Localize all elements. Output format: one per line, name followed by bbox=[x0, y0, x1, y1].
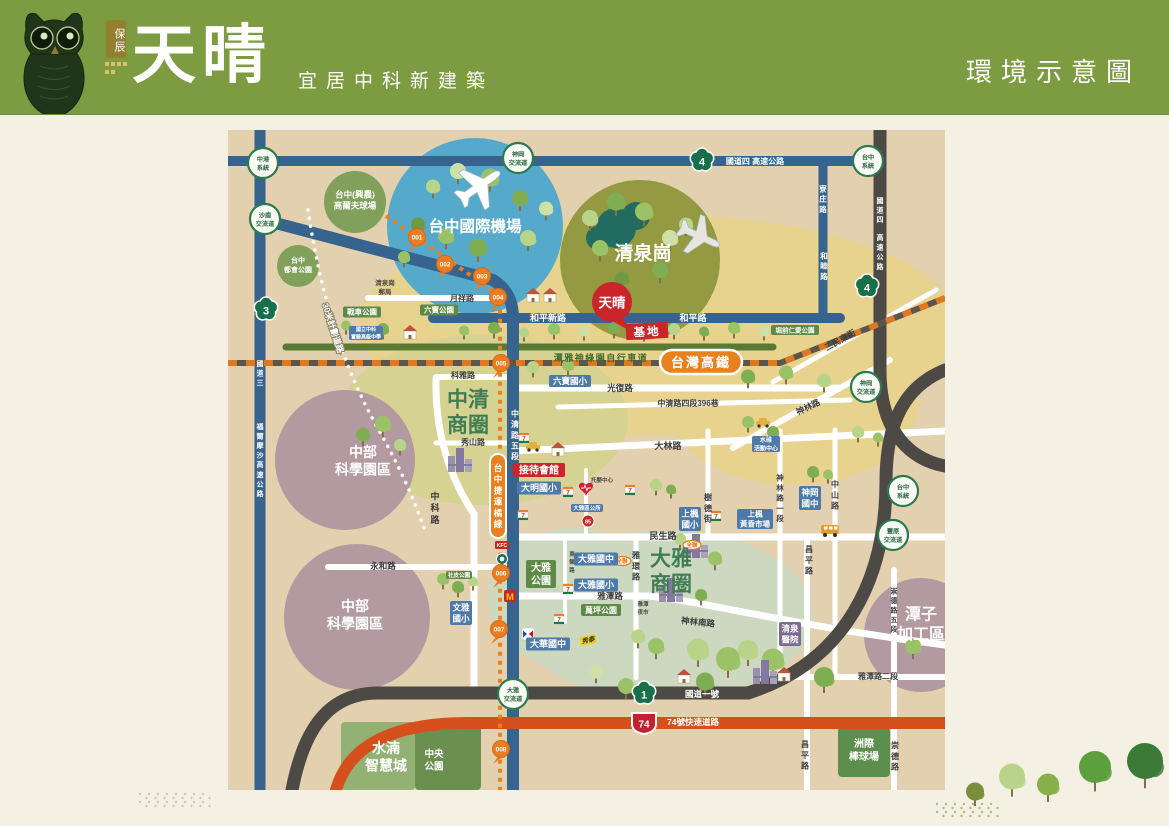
marker-id: 003 bbox=[477, 274, 488, 281]
tree-crown-2 bbox=[656, 644, 665, 653]
label-大雅區公所: 大雅區公所 bbox=[571, 504, 603, 512]
tree-icon bbox=[1079, 751, 1112, 791]
label-月祥路: 月祥路 bbox=[449, 293, 475, 303]
label-text: 文雅國小 bbox=[452, 602, 470, 623]
label-text: 大雅區公所 bbox=[573, 504, 601, 512]
grass-dot bbox=[951, 815, 953, 817]
heart bbox=[579, 483, 593, 496]
tree-crown-2 bbox=[878, 437, 884, 443]
label-和平路: 和平路 bbox=[678, 312, 707, 323]
label-text: 中山路 bbox=[831, 479, 840, 510]
seven-glyph: 7 bbox=[557, 617, 561, 624]
label-台中(興農)高爾夫球場: 台中(興農)高爾夫球場 bbox=[334, 189, 377, 210]
label-社皮公園: 社皮公園 bbox=[446, 571, 472, 579]
grass-dot bbox=[202, 793, 204, 795]
interchange-badge-台中系統: 台中系統 bbox=[853, 146, 883, 176]
tree-crown-2 bbox=[697, 647, 709, 659]
label-國道四 高速公路: 國道四 高速公路 bbox=[726, 156, 785, 166]
label-text: 74 bbox=[638, 720, 650, 731]
tree-icon bbox=[650, 479, 662, 495]
label-雅潭路二段: 雅潭路二段 bbox=[858, 671, 898, 681]
tree-icon bbox=[452, 581, 464, 597]
grass-dot bbox=[972, 803, 974, 805]
seven-glyph: 7 bbox=[521, 513, 525, 520]
grass-dot bbox=[996, 815, 998, 817]
grass-dot bbox=[190, 797, 192, 799]
tree-crown-2 bbox=[383, 422, 392, 431]
tree-crown-2 bbox=[478, 246, 488, 256]
label-text: 雅潭路二段 bbox=[858, 671, 898, 681]
label-text: 科雅路 bbox=[451, 370, 476, 380]
label-text: KFC bbox=[497, 543, 508, 549]
grass-dot bbox=[936, 803, 938, 805]
bus-wheel bbox=[823, 533, 827, 537]
tree-crown-2 bbox=[660, 268, 669, 277]
label-text: 國道四 bbox=[877, 196, 884, 224]
grass-dot bbox=[987, 815, 989, 817]
mrt-name-pill: 台中捷運橘線 bbox=[490, 454, 506, 538]
tree-crown-2 bbox=[524, 332, 530, 338]
grass-dot bbox=[969, 807, 971, 809]
shield-number: 4 bbox=[699, 156, 706, 168]
interchange-badge-豐原交流道: 豐原交流道 bbox=[878, 520, 908, 550]
label-74號快速道路: 74號快速道路 bbox=[667, 717, 719, 727]
environment-map-canvas: 7777777MKFC85全聯全聯月祥路科雅路光復路中清路四段396巷大林路秀山… bbox=[228, 130, 945, 790]
seven-eleven-icon: 7 bbox=[519, 433, 529, 443]
mrt-name: 台中捷運橘線 bbox=[493, 463, 503, 529]
brand-title: 天晴 bbox=[132, 4, 272, 96]
tree-crown-2 bbox=[734, 327, 741, 334]
tree-icon bbox=[1127, 743, 1164, 788]
decor-trees-right bbox=[935, 728, 1169, 826]
grass-dot bbox=[163, 805, 165, 807]
grass-dot bbox=[139, 801, 141, 803]
grass-dot bbox=[954, 811, 956, 813]
label-text: 006 bbox=[496, 571, 507, 578]
label-text: 7 bbox=[628, 488, 632, 495]
tree-crown-2 bbox=[828, 474, 834, 480]
tree-crown-2 bbox=[596, 670, 604, 678]
tree-crown-2 bbox=[404, 256, 411, 263]
label-六寶公園: 六寶公園 bbox=[420, 305, 458, 316]
label-text: 六寶國小 bbox=[553, 376, 588, 386]
label-text: 清泉醫院 bbox=[781, 623, 799, 644]
marker-id: 002 bbox=[440, 262, 451, 269]
tree-crown-2 bbox=[568, 364, 575, 371]
label-樹德街: 樹德街 bbox=[703, 492, 712, 523]
tree-icon bbox=[814, 667, 835, 693]
tree-crown-2 bbox=[824, 379, 832, 387]
label-六寶國小: 六寶國小 bbox=[549, 375, 591, 387]
grass-dot bbox=[963, 803, 965, 805]
label-text: 上楓國小 bbox=[681, 508, 699, 529]
site-name: 天晴 bbox=[599, 295, 627, 311]
house-door bbox=[549, 298, 552, 302]
label-大雅公園: 大雅公園 bbox=[526, 560, 556, 588]
label-text: 002 bbox=[440, 262, 451, 269]
region-metropolitan-park bbox=[277, 245, 319, 287]
tree-crown-2 bbox=[622, 277, 630, 285]
label-text: 和平路 bbox=[678, 312, 707, 323]
grass-dot bbox=[990, 811, 992, 813]
tree-crown-2 bbox=[533, 366, 540, 373]
grass-dot bbox=[951, 807, 953, 809]
page-title: 環境示意圖 bbox=[966, 52, 1141, 89]
label-大雅國小: 大雅國小 bbox=[574, 579, 618, 592]
label-萬坪公園: 萬坪公園 bbox=[581, 604, 621, 616]
taxi-wheel bbox=[527, 448, 530, 451]
interchange-badge-中港系統: 中港系統 bbox=[248, 148, 278, 178]
label-大林路: 大林路 bbox=[654, 440, 682, 451]
label-國道四: 國道四 bbox=[877, 196, 884, 224]
label-text: 005 bbox=[496, 361, 507, 368]
shield-number: 3 bbox=[263, 305, 269, 317]
tree-crown-2 bbox=[1011, 774, 1025, 788]
interchange-badge-神岡交流道: 神岡交流道 bbox=[851, 372, 881, 402]
brand-subtitle: 宜居中科新建築 bbox=[298, 66, 494, 93]
building-block bbox=[753, 676, 777, 678]
label-text: 中清路五段 bbox=[511, 408, 520, 461]
label-秀山路: 秀山路 bbox=[460, 437, 486, 447]
label-清泉崗: 清泉崗 bbox=[614, 242, 671, 265]
label-text: 7 bbox=[566, 587, 570, 594]
tree-crown-2 bbox=[715, 557, 723, 565]
seven-eleven-icon: 7 bbox=[563, 487, 573, 497]
label-text: 大林路 bbox=[654, 440, 682, 451]
label-text: 4 bbox=[864, 282, 871, 294]
tree-crown-2 bbox=[913, 644, 922, 653]
kfc-icon: KFC bbox=[495, 541, 509, 549]
label-text: 3 bbox=[263, 305, 269, 317]
building-block bbox=[761, 660, 769, 684]
tree-crown-2 bbox=[616, 200, 626, 210]
tree-crown-2 bbox=[772, 657, 784, 669]
label-寮庄路: 寮庄路 bbox=[818, 184, 827, 214]
label-text: 85 bbox=[585, 519, 591, 525]
grass-dot bbox=[981, 811, 983, 813]
label-text: 和平新路 bbox=[529, 312, 567, 323]
interchange-badge-神岡交流道: 神岡交流道 bbox=[503, 143, 533, 173]
label-text: 台灣高鐵 bbox=[671, 355, 731, 370]
label-堀前仁愛公園: 堀前仁愛公園 bbox=[771, 325, 819, 335]
tree-crown-2 bbox=[528, 236, 537, 245]
label-text: 基地 bbox=[632, 324, 661, 339]
bus-wheel bbox=[833, 533, 837, 537]
grass-dot bbox=[154, 797, 156, 799]
tree-icon bbox=[1037, 774, 1060, 802]
tree-crown-2 bbox=[674, 328, 681, 335]
tree-crown-2 bbox=[584, 331, 590, 337]
grass-dot bbox=[148, 801, 150, 803]
grass-dot bbox=[148, 793, 150, 795]
tree-crown-2 bbox=[473, 581, 479, 587]
owl-illustration bbox=[6, 0, 106, 114]
c85-glyph: 85 bbox=[585, 519, 591, 525]
grass-dot bbox=[987, 807, 989, 809]
label-text: 雅潭夜市 bbox=[636, 600, 649, 616]
label-text: 大雅國中 bbox=[578, 553, 614, 564]
grass-dot bbox=[990, 803, 992, 805]
tree-icon bbox=[999, 764, 1026, 797]
grass-dot bbox=[184, 793, 186, 795]
label-雅潭路: 雅潭路 bbox=[596, 591, 623, 601]
marker-id: 005 bbox=[496, 361, 507, 368]
tree-crown-2 bbox=[671, 489, 677, 495]
grass-dot bbox=[981, 803, 983, 805]
tree-crown-2 bbox=[383, 328, 390, 335]
label-text: 光復路 bbox=[606, 383, 633, 393]
tree-crown-2 bbox=[554, 328, 561, 335]
label-台中國際機場: 台中國際機場 bbox=[428, 216, 522, 235]
label-上楓國小: 上楓國小 bbox=[679, 507, 701, 531]
label-崇德路: 崇德路 bbox=[891, 740, 900, 771]
tree-crown-2 bbox=[748, 375, 756, 383]
label-text: 中科路 bbox=[430, 490, 440, 525]
grass-dot bbox=[996, 807, 998, 809]
coffee-center bbox=[500, 557, 505, 562]
marker-id: 007 bbox=[494, 627, 505, 634]
tree-crown-2 bbox=[748, 421, 755, 428]
label-text: 台中(興農)高爾夫球場 bbox=[334, 189, 377, 210]
label-昌平路: 昌平路 bbox=[801, 739, 810, 770]
label-潭雅神綠園自行車道: 潭雅神綠園自行車道 bbox=[554, 352, 649, 363]
label-永和路: 永和路 bbox=[369, 561, 396, 571]
grass-dot bbox=[936, 811, 938, 813]
label-text: 接待會館 bbox=[519, 464, 559, 477]
label-大明國小: 大明國小 bbox=[517, 482, 561, 495]
grass-dot bbox=[181, 797, 183, 799]
building-block bbox=[456, 448, 464, 472]
grass-dot bbox=[145, 797, 147, 799]
label-text: 天晴 bbox=[599, 295, 627, 311]
tree-crown-2 bbox=[727, 657, 740, 670]
label-text: 大明國小 bbox=[521, 482, 557, 493]
label-text: 神岡國中 bbox=[801, 487, 818, 508]
tree-crown-2 bbox=[1144, 757, 1164, 777]
expressway-shield-74: 74 bbox=[632, 713, 656, 734]
label-text: 堀前仁愛公園 bbox=[776, 325, 816, 334]
tree-crown-2 bbox=[546, 207, 554, 215]
brand-badge: 保辰 bbox=[106, 20, 126, 58]
bus-window bbox=[824, 527, 828, 530]
label-text: 六寶公園 bbox=[424, 305, 454, 315]
label-國道三: 國道三 bbox=[257, 359, 264, 387]
label-text: 清泉崗 bbox=[614, 242, 671, 265]
clinic-heart-icon bbox=[579, 483, 593, 496]
house-door bbox=[683, 679, 686, 683]
label-text: 大華國中 bbox=[530, 638, 566, 649]
label-雅環路: 雅環路 bbox=[632, 550, 641, 581]
house-door bbox=[409, 335, 412, 339]
base-text: 基地 bbox=[632, 324, 661, 339]
shield-number: 74 bbox=[638, 720, 650, 731]
coffee-icon bbox=[497, 554, 508, 565]
mcd-glyph: M bbox=[506, 592, 514, 603]
label-text: 008 bbox=[496, 747, 507, 754]
seven-glyph: 7 bbox=[566, 587, 570, 594]
label-text: 1 bbox=[641, 689, 647, 701]
seven-eleven-icon: 7 bbox=[625, 485, 635, 495]
label-民生路: 民生路 bbox=[649, 530, 677, 541]
label-神林路一段: 神林路一段 bbox=[776, 472, 784, 523]
tree-crown-2 bbox=[446, 234, 455, 243]
taxi-roof bbox=[759, 418, 767, 422]
label-text: 月祥路 bbox=[449, 293, 475, 303]
label-text: 民生路 bbox=[649, 530, 677, 541]
label-text: 國道一號 bbox=[685, 689, 720, 699]
page: 保辰 天晴 宜居中科新建築 環境示意圖 7777777MKFC85全聯全聯月祥路… bbox=[0, 0, 1169, 826]
grass-dot bbox=[945, 803, 947, 805]
marker-id: 001 bbox=[412, 235, 423, 242]
label-text: 國道三 bbox=[257, 359, 264, 387]
label-神岡國中: 神岡國中 bbox=[799, 486, 821, 510]
tree-crown-2 bbox=[464, 330, 470, 336]
grass-dot bbox=[193, 801, 195, 803]
tree-crown-2 bbox=[704, 331, 710, 337]
taxi-roof bbox=[529, 442, 537, 446]
bus-window bbox=[829, 527, 833, 530]
grass-dot bbox=[978, 807, 980, 809]
shield-number: 1 bbox=[641, 689, 647, 701]
grass-dot bbox=[145, 805, 147, 807]
tree-crown-2 bbox=[644, 210, 654, 220]
tree-crown-2 bbox=[400, 444, 407, 451]
taxi-wheel bbox=[765, 424, 768, 427]
seven-eleven-icon: 7 bbox=[711, 511, 721, 521]
label-水碓活動中心: 水碓活動中心 bbox=[752, 436, 780, 452]
label-接待會館: 接待會館 bbox=[513, 463, 565, 477]
label-text: M bbox=[506, 592, 514, 603]
grass-dot bbox=[193, 793, 195, 795]
tree-crown-2 bbox=[858, 431, 865, 438]
grass-dot bbox=[157, 801, 159, 803]
label-戰車公園: 戰車公園 bbox=[343, 307, 381, 318]
hsr-name-pill: 台灣高鐵 bbox=[660, 350, 742, 374]
tree-crown-2 bbox=[433, 185, 441, 193]
label-text: 4 bbox=[699, 156, 706, 168]
decor-grass-left bbox=[138, 790, 258, 818]
marker-id: 008 bbox=[496, 747, 507, 754]
grass-dot bbox=[945, 811, 947, 813]
grass-dot bbox=[199, 805, 201, 807]
label-text: 7 bbox=[522, 436, 526, 443]
grass-dot bbox=[963, 811, 965, 813]
label-text: 中清路四段396巷 bbox=[657, 398, 719, 408]
grass-dot bbox=[172, 805, 174, 807]
brand-badge-marks bbox=[105, 62, 127, 76]
tree-crown-2 bbox=[638, 635, 646, 643]
label-text: 雅環路 bbox=[632, 550, 641, 581]
label-text: 永和路 bbox=[369, 561, 396, 571]
grass-dot bbox=[942, 815, 944, 817]
grass-dot bbox=[208, 805, 210, 807]
grass-dot bbox=[208, 797, 210, 799]
label-托嬰中心: 托嬰中心 bbox=[591, 476, 614, 484]
tree-crown-2 bbox=[764, 331, 770, 337]
tree-crown-2 bbox=[600, 246, 609, 255]
hsr-name: 台灣高鐵 bbox=[671, 355, 731, 370]
tree-crown-2 bbox=[494, 327, 501, 334]
grass-dot bbox=[175, 793, 177, 795]
tree-crown-2 bbox=[748, 648, 759, 659]
grass-dot bbox=[184, 801, 186, 803]
marker-id: 004 bbox=[493, 295, 504, 302]
85c-icon: 85 bbox=[582, 515, 594, 527]
label-text: 潭雅神綠園自行車道 bbox=[554, 352, 649, 363]
mrt-station-marker-007: 007 bbox=[491, 621, 508, 645]
tree-icon bbox=[966, 783, 984, 807]
tree-crown-2 bbox=[590, 216, 599, 225]
grass-dot bbox=[942, 807, 944, 809]
house-door bbox=[783, 677, 786, 681]
label-text: 001 bbox=[412, 235, 423, 242]
label-text: 007 bbox=[494, 627, 505, 634]
national-highway-shield-4: 4 bbox=[689, 147, 714, 171]
label-text: 社皮公園 bbox=[447, 571, 471, 579]
tree-crown-2 bbox=[363, 433, 371, 441]
grass-dot bbox=[978, 815, 980, 817]
grass-dot bbox=[163, 797, 165, 799]
site-base-label: 基地 bbox=[626, 322, 669, 340]
label-text: 戰車公園 bbox=[347, 307, 377, 317]
grass-dot bbox=[166, 801, 168, 803]
grass-dot bbox=[172, 797, 174, 799]
label-中山路: 中山路 bbox=[831, 479, 840, 510]
label-text: 神林路一段 bbox=[776, 472, 784, 523]
grass-dot bbox=[139, 793, 141, 795]
environment-map: 7777777MKFC85全聯全聯月祥路科雅路光復路中清路四段396巷大林路秀山… bbox=[228, 130, 945, 790]
tree-crown-2 bbox=[786, 371, 794, 379]
interchange-badge-台中系統: 台中系統 bbox=[888, 476, 918, 506]
label-text: 台中捷運橘線 bbox=[493, 463, 503, 529]
label-昌平路: 昌平路 bbox=[805, 544, 814, 575]
label-text: 台中國際機場 bbox=[428, 216, 522, 235]
grass-dot bbox=[166, 793, 168, 795]
seven-glyph: 7 bbox=[522, 436, 526, 443]
seven-eleven-icon: 7 bbox=[554, 614, 564, 624]
tree-crown-2 bbox=[975, 790, 985, 800]
grass-dot bbox=[954, 803, 956, 805]
label-text: 國道四 高速公路 bbox=[726, 156, 785, 166]
label-text: 雅潭路 bbox=[596, 591, 623, 601]
tree-crown-2 bbox=[614, 327, 621, 334]
label-中清路四段396巷: 中清路四段396巷 bbox=[657, 398, 719, 408]
label-text: 004 bbox=[493, 295, 504, 302]
shield-number: 4 bbox=[864, 282, 871, 294]
label-清泉醫院: 清泉醫院 bbox=[779, 622, 801, 646]
grass-dot bbox=[202, 801, 204, 803]
label-科雅路: 科雅路 bbox=[451, 370, 476, 380]
tree-crown-2 bbox=[813, 471, 820, 478]
grass-dot bbox=[154, 805, 156, 807]
grass-dot bbox=[960, 807, 962, 809]
label-和睦路: 和睦路 bbox=[820, 251, 828, 281]
label-text: 大雅國小 bbox=[578, 579, 614, 590]
interchange-badge-沙鹿交流道: 沙鹿交流道 bbox=[250, 204, 280, 234]
label-text: 和睦路 bbox=[820, 251, 828, 281]
label-text: 74號快速道路 bbox=[667, 717, 719, 727]
seven-glyph: 7 bbox=[566, 490, 570, 497]
label-text: 樹德街 bbox=[703, 492, 712, 523]
label-光復路: 光復路 bbox=[606, 383, 633, 393]
mcdonalds-icon: M bbox=[504, 590, 516, 603]
label-text: 萬坪公園 bbox=[585, 605, 617, 615]
building-block bbox=[448, 464, 472, 466]
tree-crown-2 bbox=[656, 484, 663, 491]
label-和平新路: 和平新路 bbox=[529, 312, 567, 323]
grass-dot bbox=[960, 815, 962, 817]
label-上楓黃昏市場: 上楓黃昏市場 bbox=[737, 509, 773, 529]
